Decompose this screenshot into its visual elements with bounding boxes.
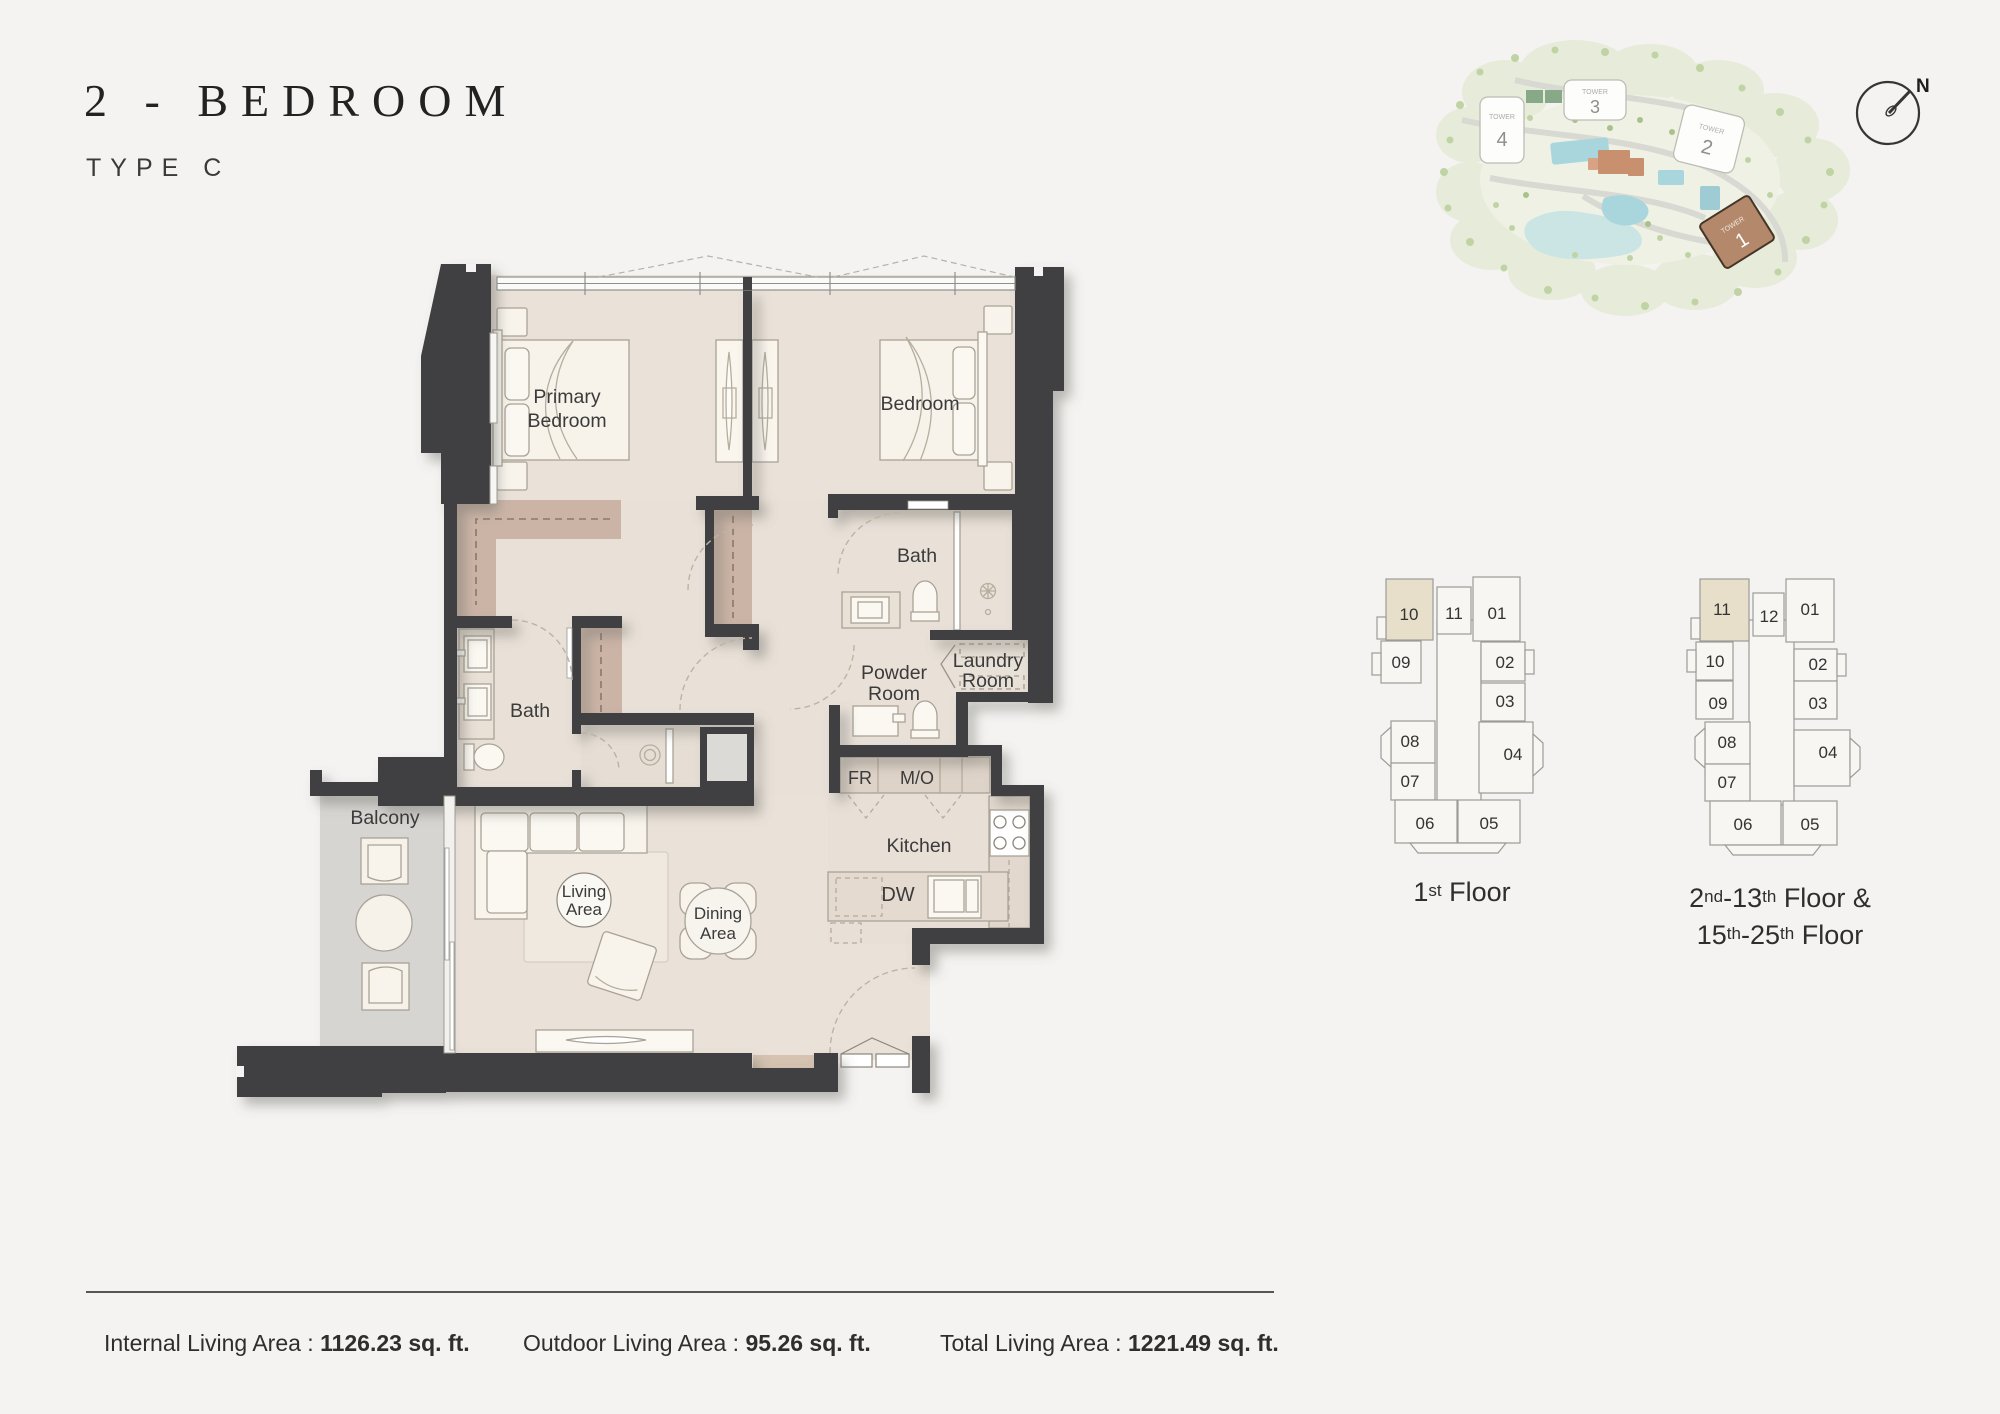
svg-text:3: 3 bbox=[1590, 97, 1600, 117]
svg-text:Living: Living bbox=[562, 882, 606, 901]
svg-text:Bath: Bath bbox=[897, 545, 937, 567]
svg-text:Powder: Powder bbox=[861, 662, 928, 684]
svg-text:M/O: M/O bbox=[900, 768, 934, 788]
svg-text:08: 08 bbox=[1718, 733, 1737, 752]
svg-text:04: 04 bbox=[1819, 743, 1838, 762]
svg-text:03: 03 bbox=[1809, 694, 1828, 713]
svg-text:2 - BEDROOM: 2 - BEDROOM bbox=[84, 75, 518, 126]
svg-text:03: 03 bbox=[1496, 692, 1515, 711]
svg-text:Bedroom: Bedroom bbox=[880, 393, 959, 415]
svg-text:Primary: Primary bbox=[533, 386, 600, 408]
svg-text:02: 02 bbox=[1809, 655, 1828, 674]
svg-text:TYPE C: TYPE C bbox=[86, 154, 230, 182]
svg-text:07: 07 bbox=[1401, 772, 1420, 791]
svg-text:01: 01 bbox=[1801, 600, 1820, 619]
svg-text:Room: Room bbox=[962, 670, 1014, 692]
svg-text:04: 04 bbox=[1504, 745, 1523, 764]
svg-text:11: 11 bbox=[1445, 604, 1463, 623]
svg-text:12: 12 bbox=[1760, 607, 1779, 626]
svg-text:Balcony: Balcony bbox=[350, 807, 420, 829]
svg-text:Bedroom: Bedroom bbox=[527, 410, 606, 432]
svg-text:08: 08 bbox=[1401, 732, 1420, 751]
svg-text:01: 01 bbox=[1488, 604, 1507, 623]
svg-text:4: 4 bbox=[1496, 129, 1507, 151]
svg-text:Area: Area bbox=[700, 924, 736, 943]
svg-text:Outdoor Living Area : 95.26 sq: Outdoor Living Area : 95.26 sq. ft. bbox=[523, 1330, 871, 1356]
svg-text:Internal Living Area : 1126.23: Internal Living Area : 1126.23 sq. ft. bbox=[104, 1330, 470, 1356]
svg-text:11: 11 bbox=[1713, 600, 1731, 619]
svg-text:02: 02 bbox=[1496, 653, 1515, 672]
svg-text:1st Floor: 1st Floor bbox=[1413, 877, 1510, 907]
svg-text:07: 07 bbox=[1718, 773, 1737, 792]
svg-text:Kitchen: Kitchen bbox=[886, 835, 951, 857]
svg-text:10: 10 bbox=[1400, 605, 1419, 624]
svg-text:15th-25th Floor: 15th-25th Floor bbox=[1697, 920, 1863, 950]
svg-text:FR: FR bbox=[848, 768, 872, 788]
svg-text:Total Living Area : 1221.49 sq: Total Living Area : 1221.49 sq. ft. bbox=[940, 1330, 1279, 1356]
svg-text:TOWER: TOWER bbox=[1582, 89, 1608, 96]
svg-text:N: N bbox=[1916, 76, 1930, 97]
svg-text:Bath: Bath bbox=[510, 700, 550, 722]
svg-text:06: 06 bbox=[1734, 815, 1753, 834]
svg-text:Laundry: Laundry bbox=[953, 650, 1024, 672]
svg-text:DW: DW bbox=[881, 884, 914, 906]
svg-text:Area: Area bbox=[566, 900, 602, 919]
svg-text:09: 09 bbox=[1709, 694, 1728, 713]
svg-text:TOWER: TOWER bbox=[1489, 114, 1515, 121]
svg-text:09: 09 bbox=[1392, 653, 1411, 672]
svg-text:05: 05 bbox=[1480, 814, 1499, 833]
svg-text:10: 10 bbox=[1706, 652, 1725, 671]
svg-text:06: 06 bbox=[1416, 814, 1435, 833]
svg-text:Dining: Dining bbox=[694, 904, 742, 923]
svg-text:05: 05 bbox=[1801, 815, 1820, 834]
svg-text:Room: Room bbox=[868, 683, 920, 705]
